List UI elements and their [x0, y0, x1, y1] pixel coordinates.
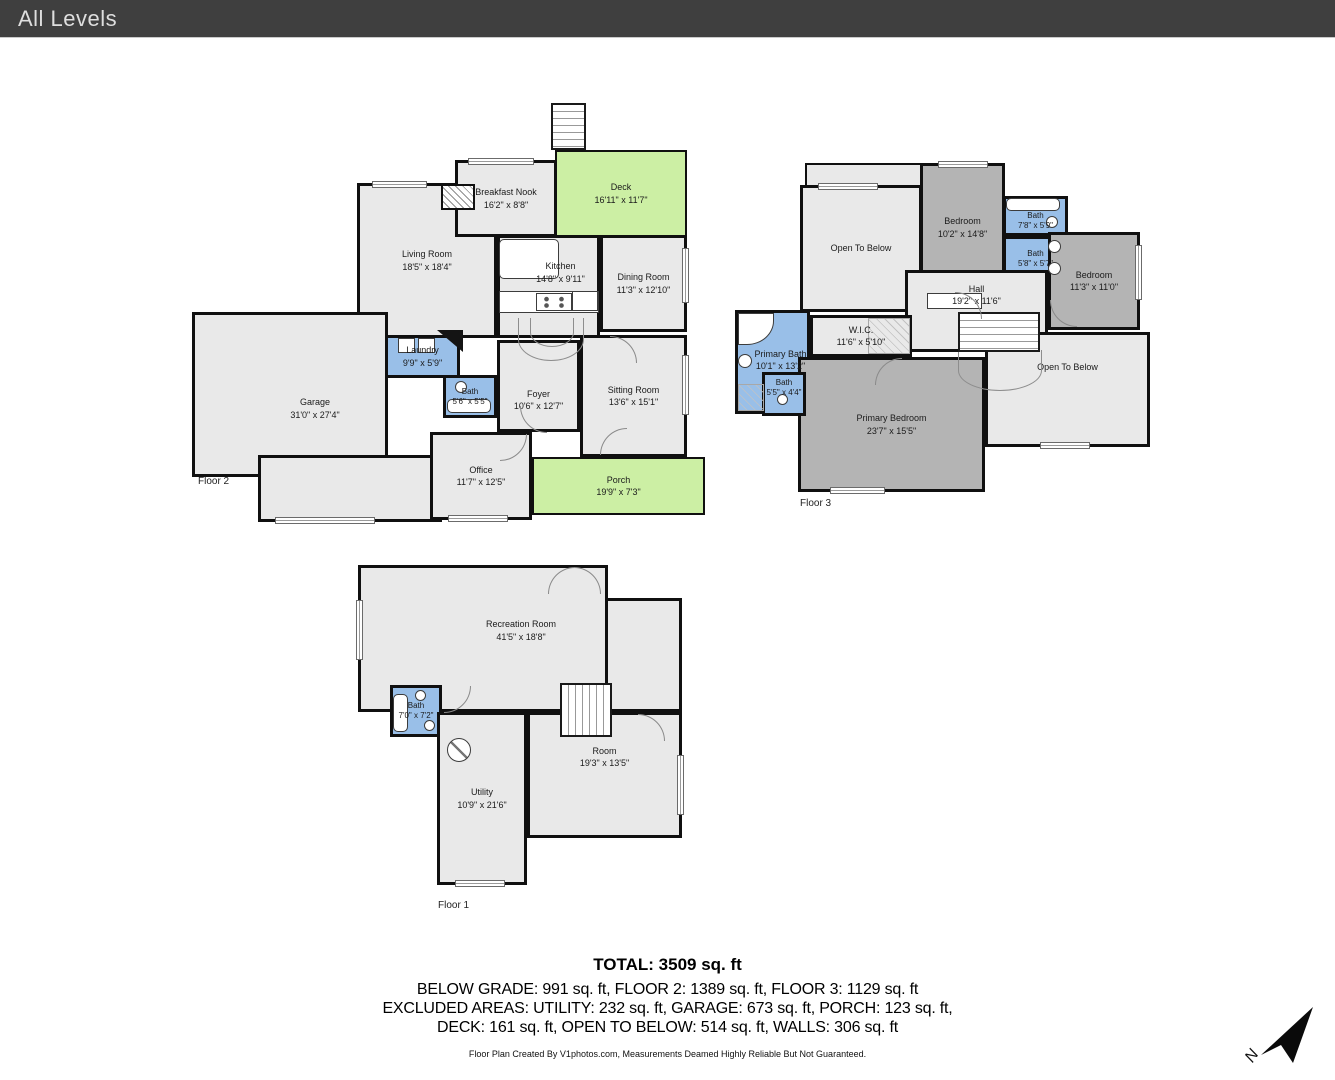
room-deck: Deck16'11" x 11'7" [555, 150, 687, 237]
north-arrow-icon: N [1235, 1005, 1325, 1067]
total-area: TOTAL: 3509 sq. ft [0, 954, 1335, 975]
toilet [415, 690, 426, 701]
window [682, 355, 689, 415]
stairs [560, 683, 612, 737]
floor-2-caption: Floor 2 [198, 476, 229, 487]
sink [424, 720, 435, 731]
window [356, 600, 363, 660]
room-utility: Utility10'9" x 21'6" [437, 712, 527, 885]
compass-label: N [1242, 1046, 1263, 1066]
window [468, 158, 534, 165]
room-garage: Garage31'0" x 27'4" [192, 312, 388, 477]
floor-areas-line: BELOW GRADE: 991 sq. ft, FLOOR 2: 1389 s… [0, 980, 1335, 999]
stove [536, 293, 572, 311]
window [682, 248, 689, 303]
north-arrow-triangle [1261, 1007, 1313, 1063]
bathtub [1006, 198, 1060, 211]
open-to-below-left: Open To Below [800, 185, 922, 312]
curved-stairs [530, 318, 574, 347]
fireplace [441, 184, 475, 210]
page-title: All Levels [0, 0, 1335, 37]
disclaimer-text: Floor Plan Created By V1photos.com, Meas… [0, 1049, 1335, 1059]
room-recreation-extension [605, 598, 682, 712]
room-porch: Porch19'9" x 7'3" [532, 457, 705, 515]
room-small-bath: Bath5'5" x 4'4" [762, 372, 806, 416]
window [448, 515, 508, 522]
window [677, 755, 684, 815]
garage-door [275, 517, 375, 524]
deck-stairs [551, 103, 586, 150]
page: All Levels Deck16'11" x 11'7" Living Roo… [0, 0, 1335, 1080]
shower [738, 384, 764, 411]
curved-stairs [958, 350, 1042, 391]
room-dining-room: Dining Room11'3" x 12'10" [600, 235, 687, 332]
room-garage-extension [258, 455, 442, 522]
window [372, 181, 427, 188]
window [455, 880, 505, 887]
header-bar: All Levels [0, 0, 1335, 38]
window [830, 487, 885, 494]
sink [738, 354, 752, 368]
floor-3-caption: Floor 3 [800, 498, 831, 509]
window [818, 183, 878, 190]
window [1135, 245, 1142, 300]
window [1040, 442, 1090, 449]
window [938, 161, 988, 168]
water-heater [447, 738, 471, 762]
excluded-areas-line-2: DECK: 161 sq. ft, OPEN TO BELOW: 514 sq.… [0, 1018, 1335, 1037]
fridge [572, 291, 598, 311]
excluded-areas-line-1: EXCLUDED AREAS: UTILITY: 232 sq. ft, GAR… [0, 999, 1335, 1018]
floor-1-caption: Floor 1 [438, 900, 469, 911]
area-summary: TOTAL: 3509 sq. ft BELOW GRADE: 991 sq. … [0, 954, 1335, 1059]
